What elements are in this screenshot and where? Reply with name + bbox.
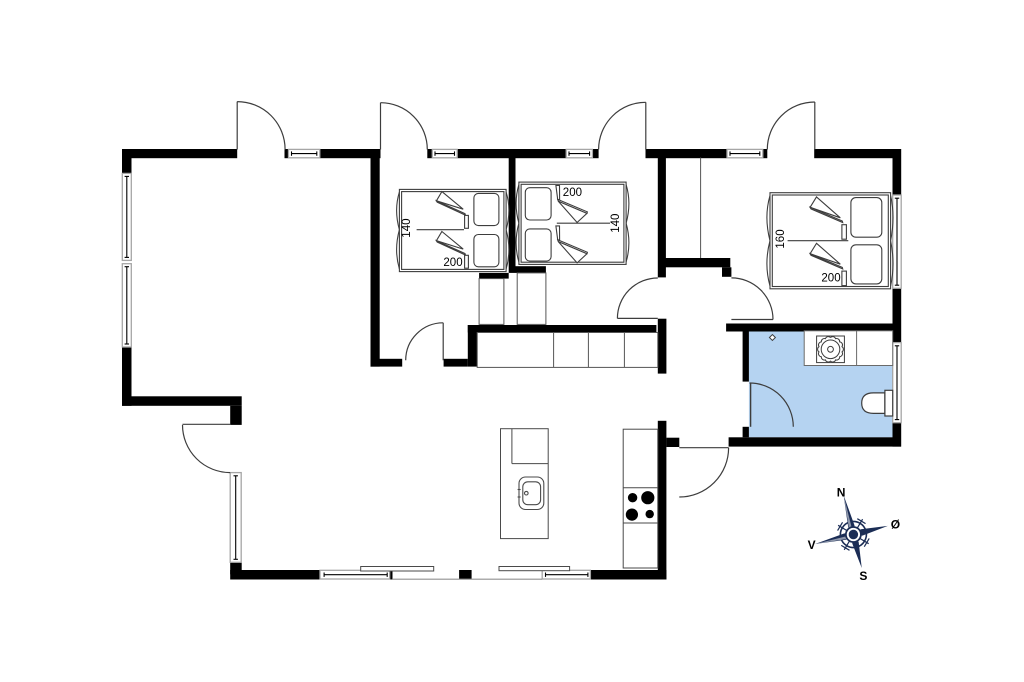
svg-text:S: S [859, 569, 867, 583]
svg-text:200: 200 [563, 187, 582, 199]
svg-text:V: V [808, 538, 816, 552]
svg-text:200: 200 [821, 273, 840, 285]
svg-text:140: 140 [401, 219, 413, 238]
svg-text:200: 200 [443, 257, 462, 269]
svg-text:160: 160 [775, 229, 787, 248]
svg-text:Ø: Ø [891, 518, 900, 532]
svg-text:140: 140 [610, 214, 622, 233]
svg-text:N: N [837, 486, 846, 500]
